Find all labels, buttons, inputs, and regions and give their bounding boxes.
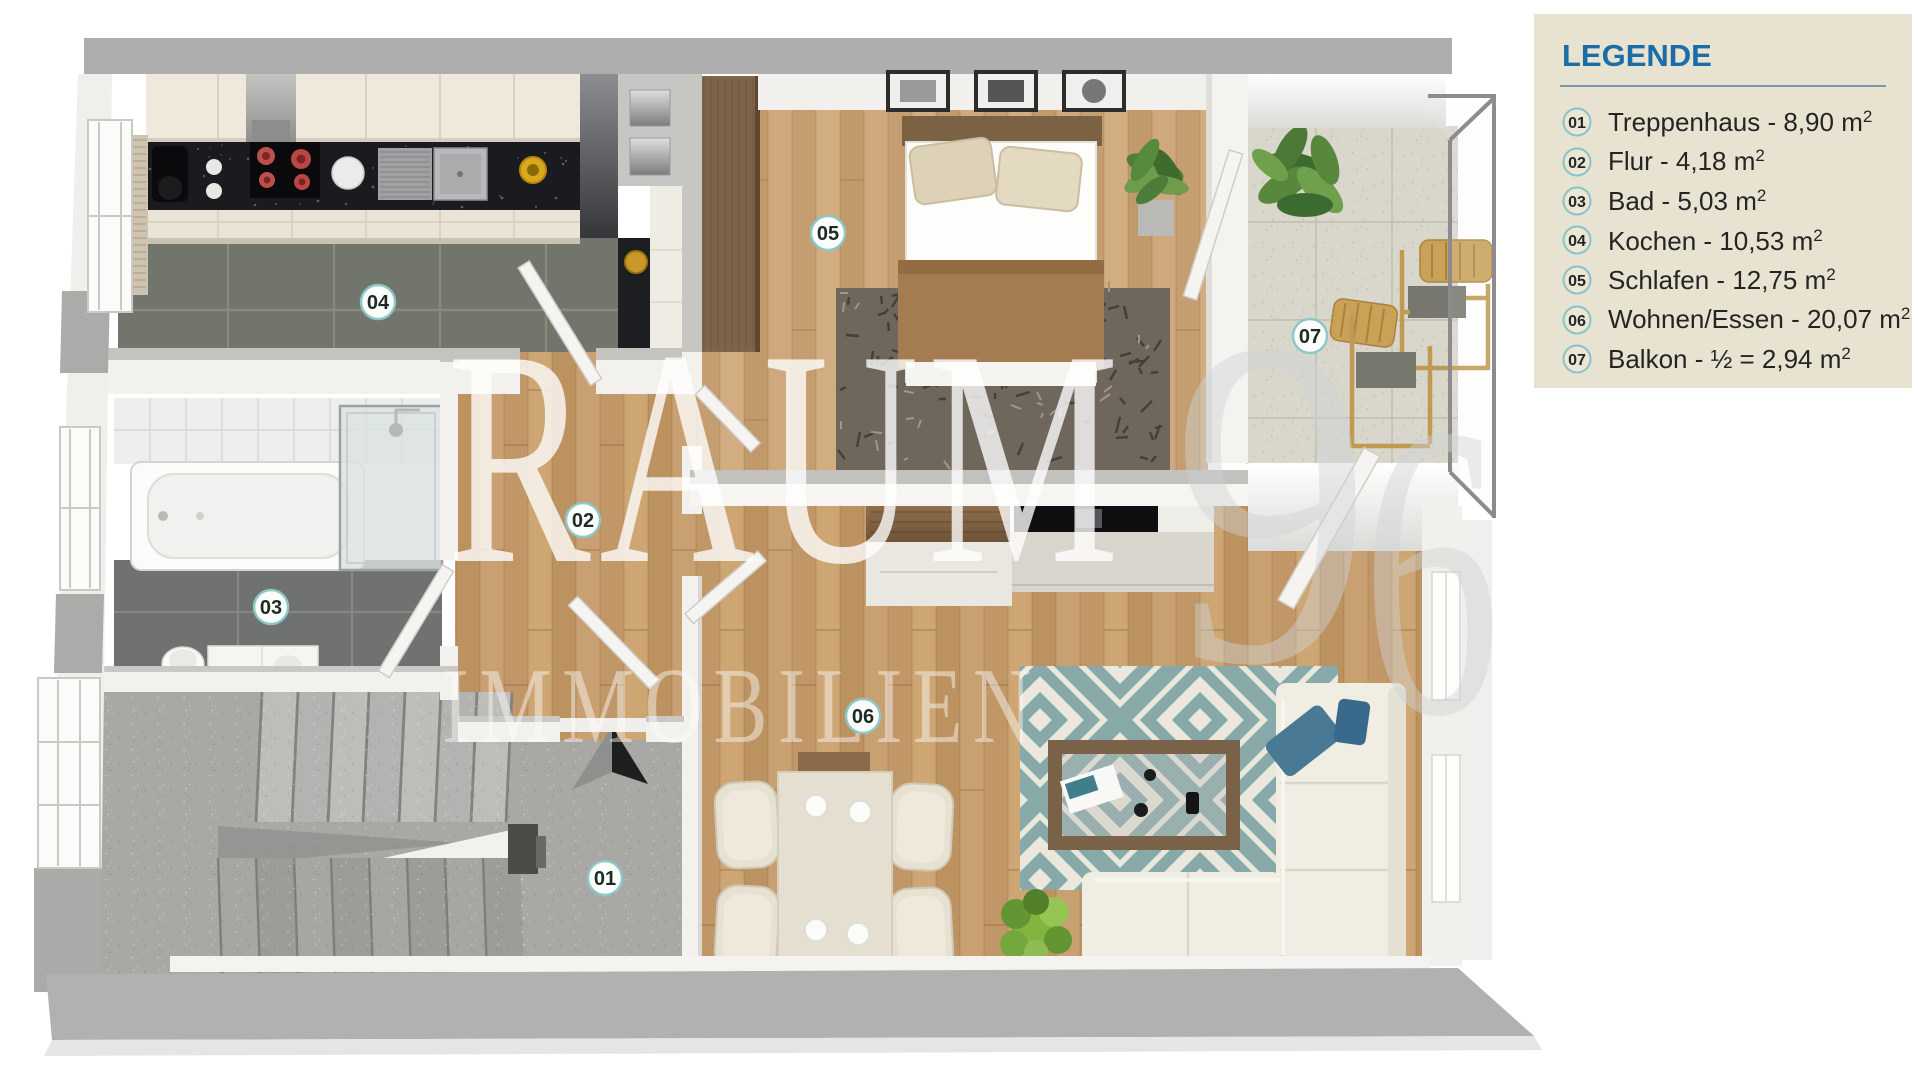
svg-text:02: 02	[1568, 155, 1586, 172]
svg-text:04: 04	[367, 292, 390, 314]
svg-text:01: 01	[1568, 115, 1586, 132]
svg-text:IMMOBILIEN: IMMOBILIEN	[442, 646, 1042, 766]
svg-text:Kochen - 10,53 m2: Kochen - 10,53 m2	[1608, 226, 1823, 256]
svg-text:02: 02	[572, 510, 594, 532]
svg-text:05: 05	[1568, 273, 1586, 290]
svg-text:04: 04	[1568, 233, 1586, 250]
svg-text:05: 05	[817, 223, 839, 245]
svg-text:Flur - 4,18 m2: Flur - 4,18 m2	[1608, 146, 1765, 176]
svg-text:06: 06	[852, 706, 874, 728]
svg-text:Balkon - ½ = 2,94 m2: Balkon - ½ = 2,94 m2	[1608, 344, 1851, 374]
svg-text:06: 06	[1568, 313, 1586, 330]
svg-text:01: 01	[594, 868, 616, 890]
svg-text:Bad - 5,03 m2: Bad - 5,03 m2	[1608, 186, 1766, 216]
svg-text:Treppenhaus - 8,90 m2: Treppenhaus - 8,90 m2	[1608, 107, 1872, 137]
svg-text:9: 9	[1172, 242, 1372, 762]
svg-text:07: 07	[1568, 352, 1586, 369]
svg-text:03: 03	[260, 597, 282, 619]
svg-text:Schlafen - 12,75 m2: Schlafen - 12,75 m2	[1608, 265, 1836, 295]
svg-text:RAUM: RAUM	[447, 286, 1128, 628]
svg-text:Wohnen/Essen - 20,07 m2: Wohnen/Essen - 20,07 m2	[1608, 304, 1910, 334]
svg-text:03: 03	[1568, 194, 1586, 211]
svg-text:LEGENDE: LEGENDE	[1562, 38, 1712, 73]
svg-text:07: 07	[1299, 326, 1321, 348]
svg-text:6: 6	[1362, 338, 1501, 803]
